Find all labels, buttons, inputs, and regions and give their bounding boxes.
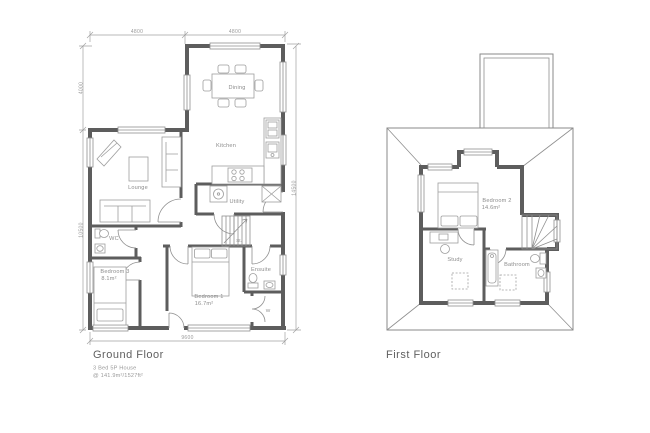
window-dining-left xyxy=(184,75,190,110)
wc-fixtures xyxy=(95,229,109,253)
first-floor-doors xyxy=(458,229,506,265)
utility-appliances xyxy=(210,186,281,202)
dim-top-right: 4800 xyxy=(229,29,241,35)
window-dining-top xyxy=(210,43,260,49)
kitchen-counters xyxy=(212,118,281,184)
room-area-bedroom1: 16.7m² xyxy=(195,301,214,307)
room-label-bathroom: Bathroom xyxy=(504,262,530,268)
dim-top-left: 4800 xyxy=(131,29,143,35)
window-bed2-left xyxy=(418,175,424,212)
ground-floor-subtitle: 3 Bed 5P House xyxy=(93,366,136,372)
window-bed1-bottom xyxy=(188,325,250,331)
room-label-wc: WC xyxy=(109,236,119,242)
study-eaves-storage xyxy=(452,273,468,289)
ground-floor-area-note: @ 141.9m²/1527ft² xyxy=(93,373,143,379)
dim-right: 14500 xyxy=(292,180,298,195)
window-lounge-left xyxy=(87,138,93,167)
room-label-dining: Dining xyxy=(228,85,245,91)
first-floor-plan: Bedroom 2 14.6m² Study Bathroom First Fl… xyxy=(386,54,573,361)
window-lounge-top xyxy=(118,127,165,133)
dim-left-lower: 10500 xyxy=(79,222,85,237)
door-utility xyxy=(214,214,234,234)
door-wc xyxy=(118,230,136,248)
window-bathroom-bottom xyxy=(495,300,520,306)
door-garden xyxy=(169,313,184,328)
room-label-wardrobe: W xyxy=(266,308,271,314)
window-notch-top xyxy=(464,149,492,155)
door-bedroom1 xyxy=(170,246,188,264)
room-area-bedroom2: 14.6m² xyxy=(482,205,501,211)
first-floor-title: First Floor xyxy=(386,349,441,361)
lounge-furniture xyxy=(97,137,181,222)
door-wardrobe xyxy=(252,296,265,322)
study-desk xyxy=(430,232,458,254)
first-floor-stairs xyxy=(522,215,557,249)
room-label-lounge: Lounge xyxy=(128,185,148,191)
floor-plan-drawing: 4800 4800 4000 10500 14500 9600 xyxy=(0,0,650,433)
room-label-utility: Utility xyxy=(229,199,244,205)
window-dining-right xyxy=(280,62,286,112)
room-label-bedroom3: Bedroom 3 xyxy=(100,269,129,275)
room-label-kitchen: Kitchen xyxy=(216,143,236,149)
bedroom1-bed xyxy=(192,247,229,296)
dim-left-upper: 4000 xyxy=(79,82,85,94)
window-bed3-left xyxy=(87,262,93,293)
door-ensuite xyxy=(252,246,270,264)
window-study-bottom xyxy=(448,300,473,306)
door-bedroom2 xyxy=(458,229,474,245)
room-area-bedroom3: 8.1m² xyxy=(101,276,116,282)
rear-wing-roof xyxy=(480,54,553,128)
room-label-ensuite: Ensuite xyxy=(251,267,271,273)
window-bed2-top xyxy=(428,164,452,170)
room-label-bedroom2: Bedroom 2 xyxy=(482,198,511,204)
ground-floor-plan: 4800 4800 4000 10500 14500 9600 xyxy=(79,29,302,379)
dim-bottom: 9600 xyxy=(181,335,193,341)
bathroom-eaves-storage xyxy=(500,275,516,290)
window-ensuite-right xyxy=(280,255,286,275)
window-bed3-bottom xyxy=(93,325,128,331)
ground-floor-title: Ground Floor xyxy=(93,349,164,361)
door-lounge xyxy=(158,199,181,222)
ensuite-fixtures xyxy=(248,274,275,290)
floor-plan-sheet: 4800 4800 4000 10500 14500 9600 xyxy=(0,0,650,433)
room-label-study: Study xyxy=(447,257,462,263)
room-label-stairs: St. xyxy=(236,238,242,244)
bedroom2-bed xyxy=(438,183,478,228)
room-label-bedroom1: Bedroom 1 xyxy=(194,294,223,300)
